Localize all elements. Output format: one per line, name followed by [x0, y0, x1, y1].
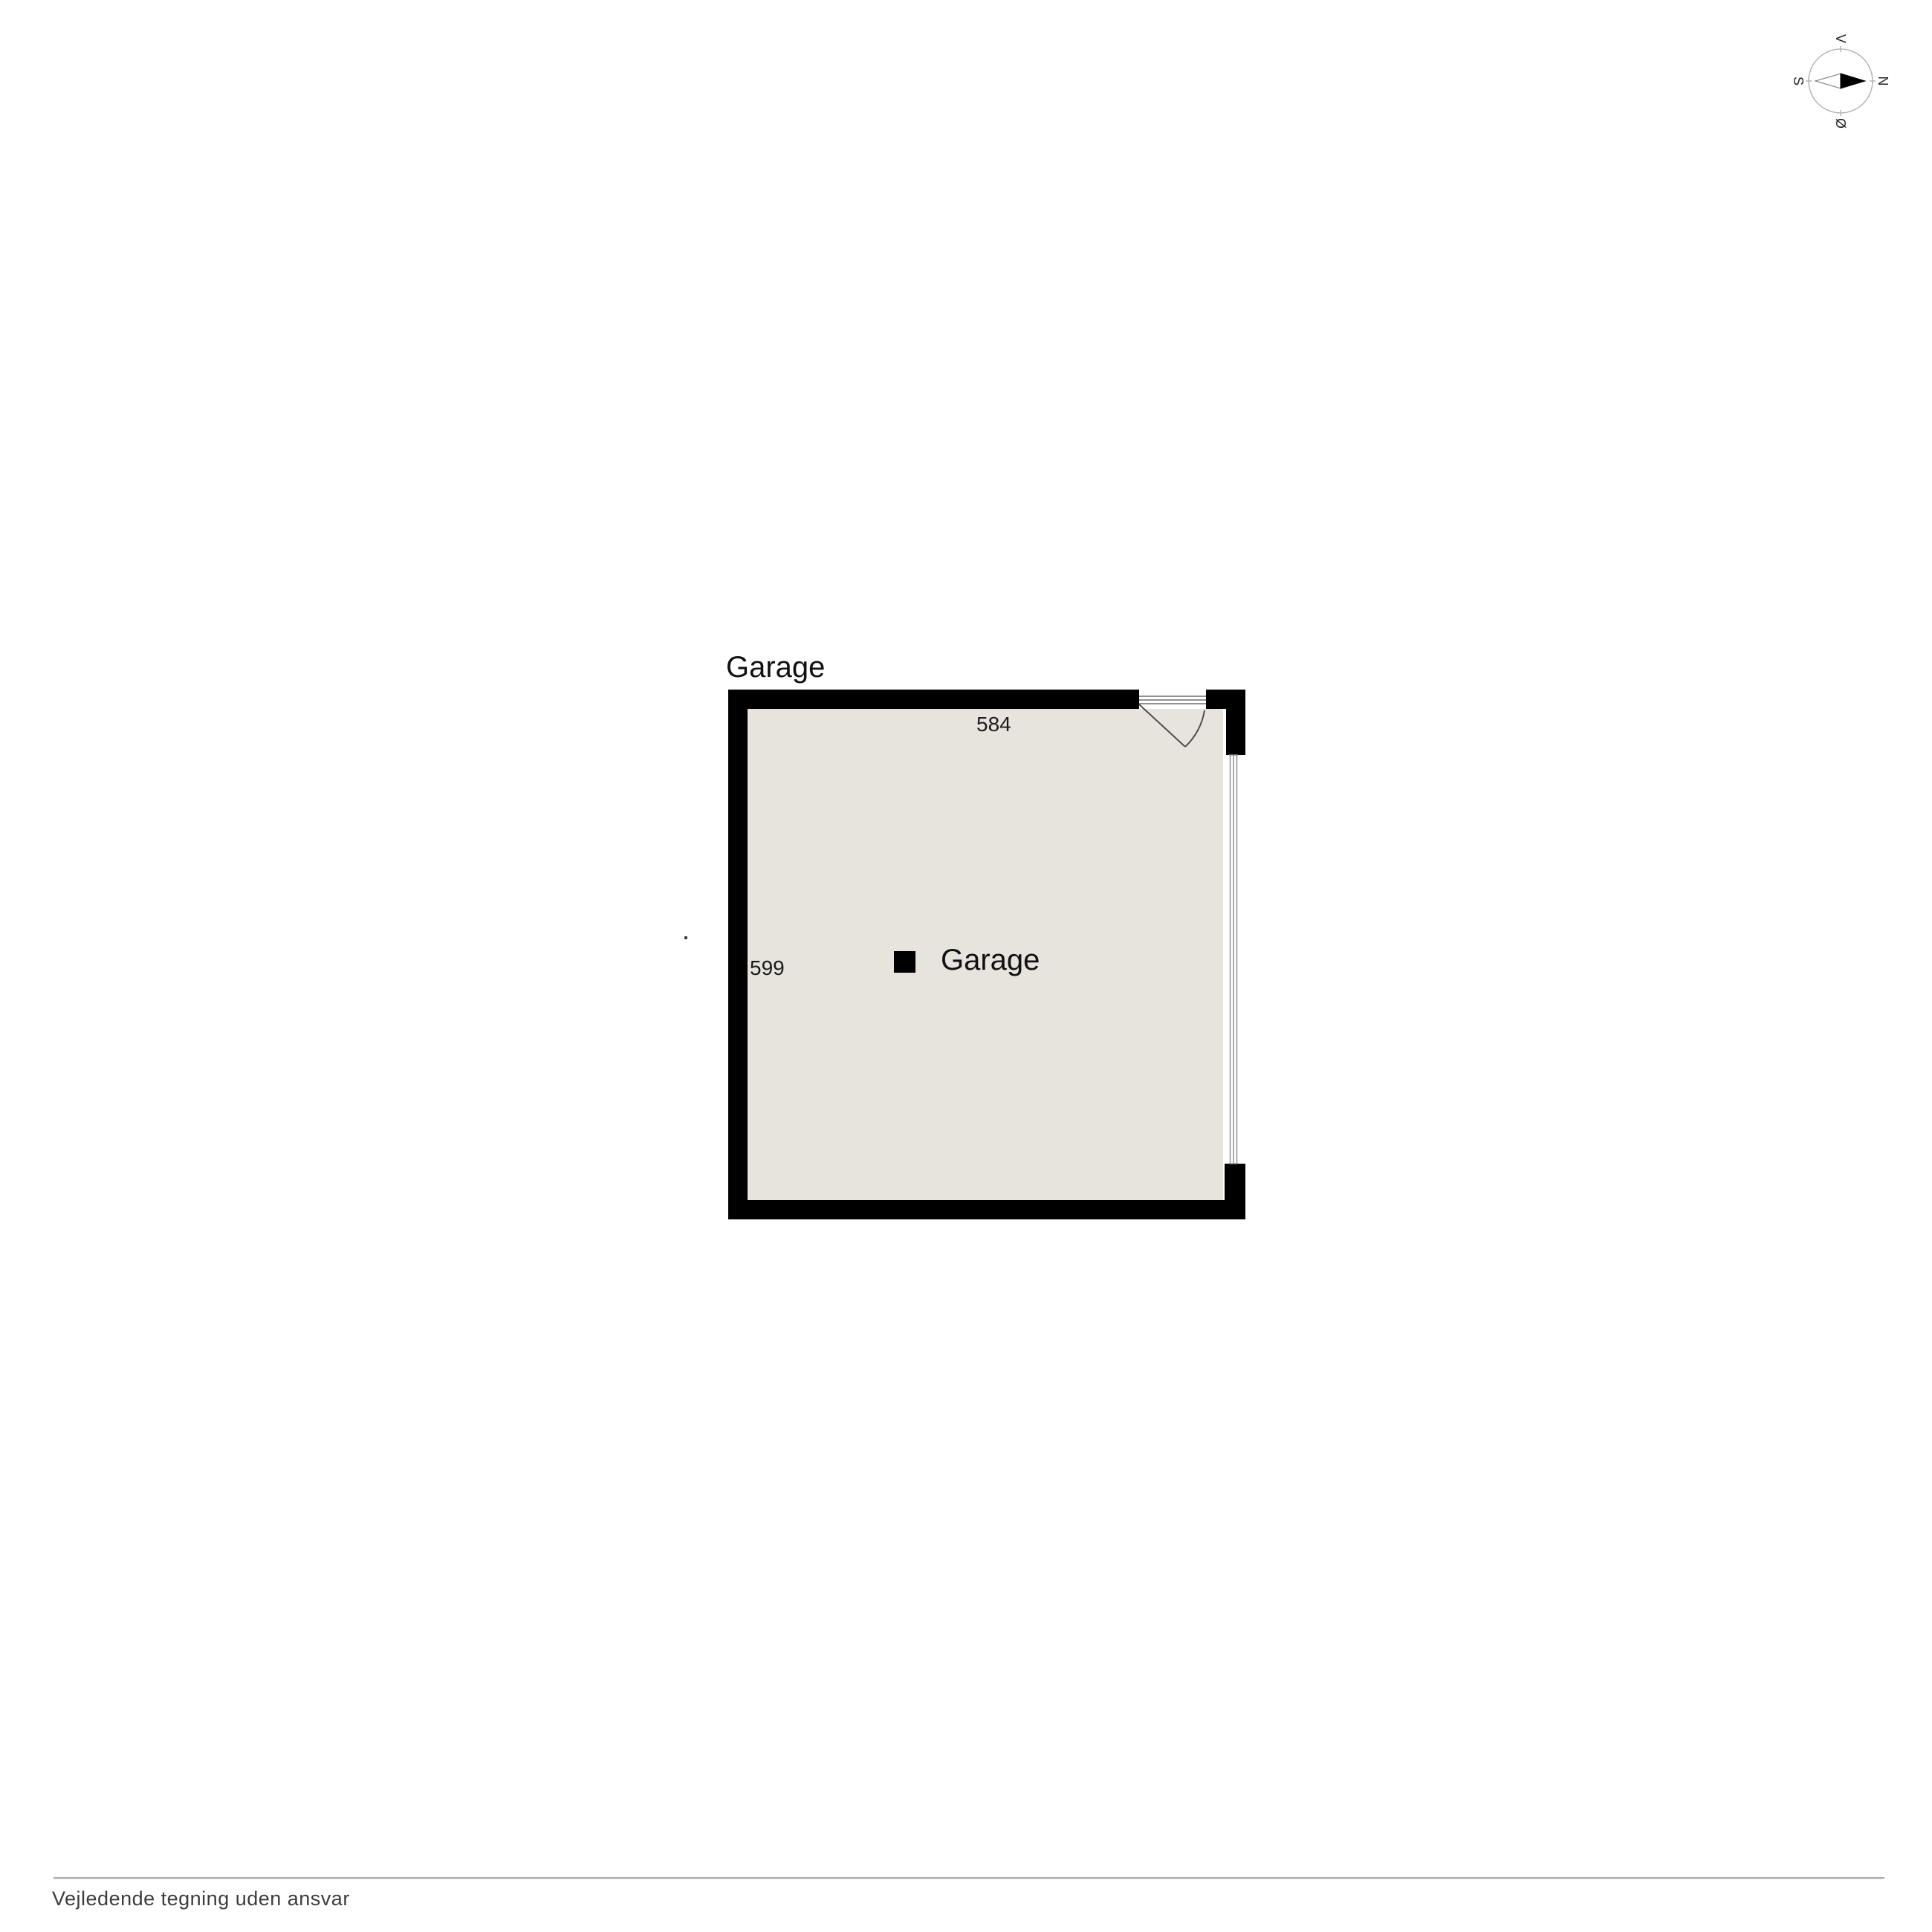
wall-right-upper-stub	[1226, 690, 1245, 755]
room-label-text: Garage	[941, 945, 1040, 975]
compass-label-west: V	[1833, 34, 1848, 43]
compass-needle-tail	[1815, 74, 1841, 88]
footer-divider	[54, 1877, 1884, 1879]
wall-left	[728, 690, 748, 1219]
wall-top	[728, 690, 1139, 709]
compass-label-south: S	[1791, 77, 1806, 85]
room-marker-square-icon	[894, 951, 915, 973]
compass-rose: V N S Ø	[1789, 25, 1893, 137]
compass-needle-north-icon	[1841, 74, 1865, 88]
room-label: Garage	[894, 945, 1040, 975]
disclaimer-text: Vejledende tegning uden ansvar	[52, 1887, 350, 1910]
compass-label-north: N	[1876, 77, 1890, 86]
floorplan-page: V N S Ø Garage	[0, 0, 1932, 1932]
door-threshold	[1139, 696, 1206, 704]
dimension-height: 599	[750, 958, 785, 979]
stray-dot	[684, 936, 687, 939]
wall-bottom	[728, 1200, 1245, 1219]
dimension-width: 584	[976, 714, 1011, 735]
garage-door-symbol	[1229, 755, 1238, 1164]
compass-label-east: Ø	[1833, 118, 1848, 129]
